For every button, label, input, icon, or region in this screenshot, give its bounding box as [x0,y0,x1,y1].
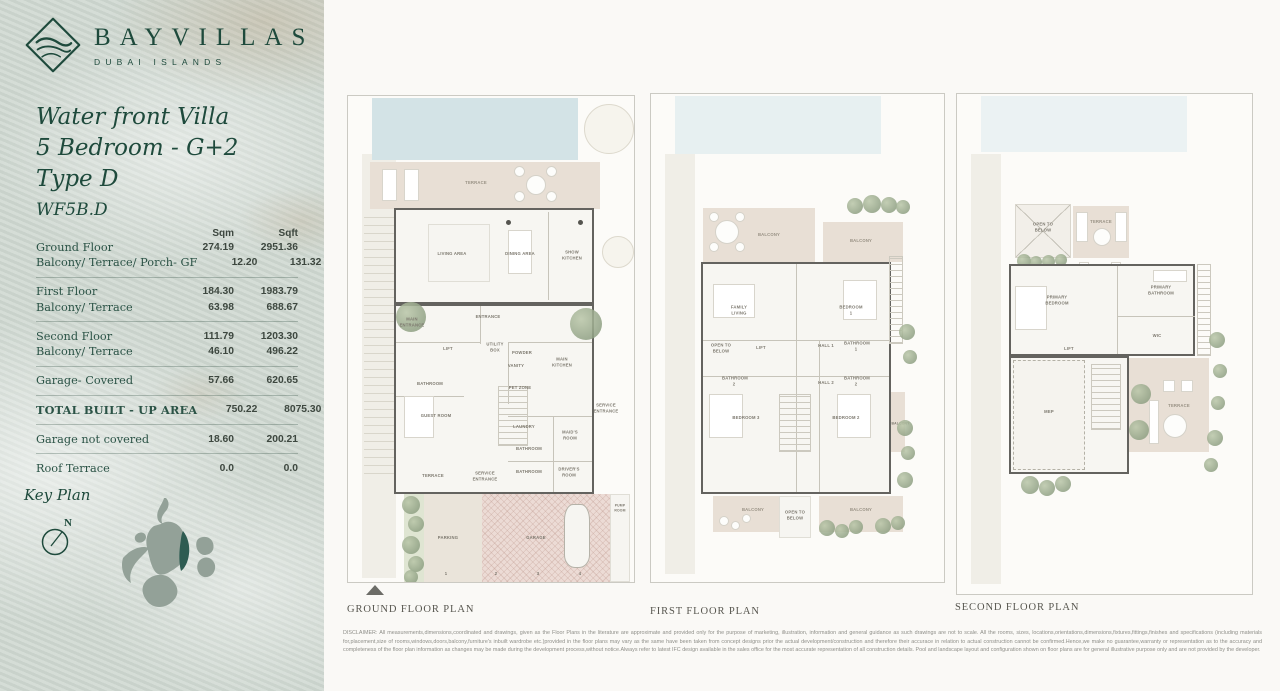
room-label: LIFT [443,346,453,352]
lounger [1076,212,1088,242]
brand-subtitle: DUBAI ISLANDS [94,57,314,67]
title-line-1: Water front Villa [36,102,238,133]
room-label: TERRACE [422,473,444,479]
room-label: 2 [495,571,498,577]
table [526,175,546,195]
key-plan-heading: Key Plan [24,486,90,504]
table-divider [36,321,298,322]
room-label: TERRACE [1168,403,1190,409]
row-label: First Floor [36,285,174,298]
area-table-row: Second Floor111.791203.30 [36,329,298,344]
table [1093,228,1111,246]
room-label: OPEN TO BELOW [1030,221,1056,232]
room-label: BATHROOM [516,469,542,475]
walkway [665,154,695,574]
shrub [1021,476,1039,494]
room-label: BALCONY [850,507,872,513]
room-label: BATHROOM 2 [844,375,868,386]
room-label: BATHROOM 1 [844,340,868,351]
room-label: PRIMARY BEDROOM [1042,294,1072,305]
bathtub [1153,270,1187,282]
plant [1131,384,1151,404]
vline [819,340,820,492]
plant [1129,420,1149,440]
row-value: 46.10 [182,346,234,357]
entrance-marker [366,585,384,595]
room-label: LIVING AREA [437,251,466,257]
room-label: POWDER [512,350,532,356]
shrub [849,520,863,534]
brand-logo: BAYVILLAS DUBAI ISLANDS [24,16,314,74]
pool-below [981,96,1187,152]
room-label: MAIN KITCHEN [547,356,577,367]
room-label: 3 [537,571,540,577]
shrub [402,496,420,514]
side-steps [364,214,394,474]
area-table-row: Garage not covered18.60200.21 [36,432,298,447]
room-label: GARAGE [526,535,546,541]
vline [796,264,797,492]
shrub [881,197,897,213]
dot [506,220,511,225]
table-divider [36,395,298,396]
row-value: 688.67 [242,302,298,313]
shrub [901,446,915,460]
lounger [1115,212,1127,242]
chair [709,212,719,222]
hline [508,461,592,462]
chair [735,242,745,252]
row-value: 184.30 [182,286,234,297]
row-value: 2951.36 [242,242,298,253]
room-label: SERVICE ENTRANCE [471,470,499,481]
garage [482,494,628,582]
second-floor-caption: SECOND FLOOR PLAN [955,602,1079,613]
vline [548,212,549,300]
table-divider [36,453,298,454]
room-label: OPEN TO BELOW [783,509,807,520]
row-value: 274.19 [182,242,234,253]
shrub [899,324,915,340]
hline [1117,316,1195,317]
staircase [1091,364,1121,430]
room-label: TERRACE [465,180,487,186]
room-label: SERVICE ENTRANCE [593,402,619,413]
row-label: Garage- Covered [36,374,174,387]
row-value: 496.22 [242,346,298,357]
row-value: 1203.30 [242,331,298,342]
shrub [875,518,891,534]
area-table-row: Balcony/ Terrace/ Porch- GF12.20131.32 [36,255,298,270]
row-label: Ground Floor [36,241,174,254]
row-label: Balcony/ Terrace/ Porch- GF [36,256,197,269]
shrub [1039,480,1055,496]
chair [1163,380,1175,392]
chair [1181,380,1193,392]
bench [1149,400,1159,444]
shrub [896,200,910,214]
bayvillas-diamond-icon [24,16,82,74]
room-label: BATHROOM 2 [722,375,746,386]
compass-icon [38,518,72,558]
row-value: 18.60 [182,434,234,445]
chair [709,242,719,252]
bed [1015,286,1047,330]
room-label: PET ZONE [509,385,532,391]
second-floor-plan: OPEN TO BELOWTERRACEPRIMARY BEDROOMPRIMA… [956,93,1253,595]
room-label: DRIVER'S ROOM [555,466,583,477]
ground-floor-plan: TERRACELIVING AREADINING AREASHOW KITCHE… [347,95,635,583]
row-value: 1983.79 [242,286,298,297]
vline [553,416,554,492]
shrub [408,516,424,532]
room-label: LAUNDRY [513,424,535,430]
room-label: PRIMARY BATHROOM [1146,284,1176,295]
row-label: Garage not covered [36,433,174,446]
header-sqft: Sqft [242,228,298,239]
room-label: BATHROOM [516,446,542,452]
room-label: MAIN ENTRANCE [399,316,425,327]
title-line-3: Type D [36,164,238,195]
room-label: BALCONY [742,507,764,513]
brand-wordmark: BAYVILLAS [94,24,314,52]
shrub [1055,476,1071,492]
first-floor-caption: FIRST FLOOR PLAN [650,606,760,617]
room-label: HALL 1 [818,343,834,349]
row-value: 0.0 [182,463,234,474]
shrub [1209,332,1225,348]
room-label: BEDROOM 1 [838,304,864,315]
shrub [863,195,881,213]
table [715,220,739,244]
chair [546,166,557,177]
row-value: 57.66 [182,375,234,386]
dot [578,220,583,225]
table-divider [36,277,298,278]
tree [602,236,634,268]
disclaimer-text: DISCLAIMER: All measurements,dimensions,… [343,629,1262,655]
chair [735,212,745,222]
villa-code: WF5B.D [36,200,238,220]
pool [372,98,578,160]
room-label: BALCONY [758,232,780,238]
sidebar: BAYVILLAS DUBAI ISLANDS Water front Vill… [0,0,324,691]
room-label: PUMP ROOM [612,503,628,512]
room-label: MAID'S ROOM [557,429,583,440]
shrub [1204,458,1218,472]
row-label: Second Floor [36,330,174,343]
area-table: Sqm Sqft Ground Floor274.192951.36Balcon… [36,226,298,476]
room-label: SHOW KITCHEN [557,249,587,260]
room-label: WIC [1153,333,1162,339]
room-label: BEDROOM 3 [732,415,759,421]
room-label: PARKING [438,535,458,541]
key-plan-map [103,496,253,614]
hline [508,342,592,343]
room-label: BEDROOM 2 [832,415,859,421]
shrub [1213,364,1227,378]
room-label: DINING AREA [505,251,535,257]
room-label: LIFT [1064,346,1074,352]
row-value: 12.20 [205,257,257,268]
vline [480,306,481,344]
mep [1013,360,1085,470]
room-label: GUEST ROOM [421,413,452,419]
area-table-row: TOTAL BUILT - UP AREA750.228075.30 [36,402,298,417]
staircase [779,394,811,452]
staircase [498,386,528,446]
shrub [402,536,420,554]
table [1163,414,1187,438]
shrub [819,520,835,536]
room-label: BALCONY [850,238,872,244]
room-label: TERRACE [1090,219,1112,225]
room-label: 1 [445,571,448,577]
shrub [1211,396,1225,410]
title-line-2: 5 Bedroom - G+2 [36,133,238,164]
room-label: MEP [1044,409,1054,415]
brochure-page: BAYVILLAS DUBAI ISLANDS Water front Vill… [0,0,1280,691]
shrub [847,198,863,214]
area-table-row: Balcony/ Terrace46.10496.22 [36,344,298,359]
shrub [891,516,905,530]
room-label: ENTRANCE [476,314,501,320]
row-label: Roof Terrace [36,462,174,475]
room-label: 4 [579,571,582,577]
area-table-row: Roof Terrace0.00.0 [36,461,298,476]
hline [396,342,480,343]
shrub [903,350,917,364]
first-floor-plan: BALCONYBALCONYFAMILY LIVINGBEDROOM 1OPEN… [650,93,945,583]
pot [719,516,729,526]
room-label: LIFT [756,345,766,351]
room-label: UTILITY BOX [484,341,506,352]
plant [570,308,602,340]
pot [742,514,751,523]
row-value: 200.21 [242,434,298,445]
shrub [897,420,913,436]
villa-title: Water front Villa 5 Bedroom - G+2 Type D… [36,102,238,220]
row-value: 620.65 [242,375,298,386]
header-sqm: Sqm [182,228,234,239]
area-table-row: First Floor184.301983.79 [36,284,298,299]
shrub [404,570,418,583]
shrub [897,472,913,488]
area-table-row: Balcony/ Terrace63.98688.67 [36,300,298,315]
lounger [382,169,397,201]
area-table-header: Sqm Sqft [36,226,298,240]
row-label: Balcony/ Terrace [36,301,174,314]
ground-floor-caption: GROUND FLOOR PLAN [347,604,474,615]
row-value: 111.79 [182,331,234,342]
shrub [835,524,849,538]
area-table-row: Garage- Covered57.66620.65 [36,373,298,388]
row-value: 63.98 [182,302,234,313]
area-table-row: Ground Floor274.192951.36 [36,240,298,255]
row-label: Balcony/ Terrace [36,345,174,358]
car [564,504,590,568]
table-divider [36,366,298,367]
room-label: OPEN TO BELOW [709,342,733,353]
row-value: 8075.30 [265,404,321,415]
row-value: 131.32 [265,257,321,268]
chair [514,166,525,177]
room-label: HALL 2 [818,380,834,386]
chair [514,191,525,202]
row-value: 0.0 [242,463,298,474]
chair [546,191,557,202]
row-value: 750.22 [205,404,257,415]
lounger [404,169,419,201]
shrub [1207,430,1223,446]
table-divider [36,424,298,425]
row-label: TOTAL BUILT - UP AREA [36,403,197,417]
pool-below [675,96,881,154]
room-label: VANITY [508,363,524,369]
room-label: FAMILY LIVING [724,304,754,315]
vline [1117,266,1118,354]
pot [731,521,740,530]
tree [584,104,634,154]
walkway [971,154,1001,584]
room-label: BATHROOM [417,381,443,387]
